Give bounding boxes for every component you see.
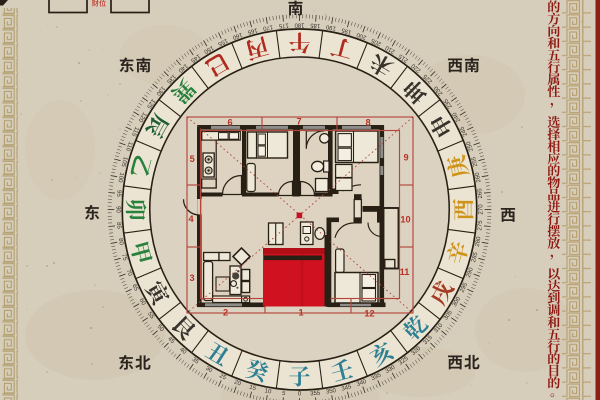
svg-text:185: 185 [309,21,320,28]
svg-text:85: 85 [115,222,122,230]
svg-text:1: 1 [298,308,303,318]
svg-text:265: 265 [477,187,484,198]
svg-text:270: 270 [478,204,484,215]
svg-text:7: 7 [296,116,301,126]
svg-text:10: 10 [400,215,410,225]
svg-text:5: 5 [190,154,195,164]
svg-text:12: 12 [364,309,374,319]
svg-text:11: 11 [400,267,410,277]
svg-text:4: 4 [188,214,194,224]
svg-text:9: 9 [403,153,408,163]
svg-text:2: 2 [223,308,228,318]
svg-text:275: 275 [477,220,484,231]
svg-text:180: 180 [294,21,305,27]
svg-text:95: 95 [115,190,122,198]
svg-text:6: 6 [227,117,232,127]
svg-text:3: 3 [189,273,194,283]
svg-text:355: 355 [310,390,321,397]
svg-text:175: 175 [278,22,289,29]
svg-text:8: 8 [365,117,370,127]
svg-text:90: 90 [115,206,121,213]
